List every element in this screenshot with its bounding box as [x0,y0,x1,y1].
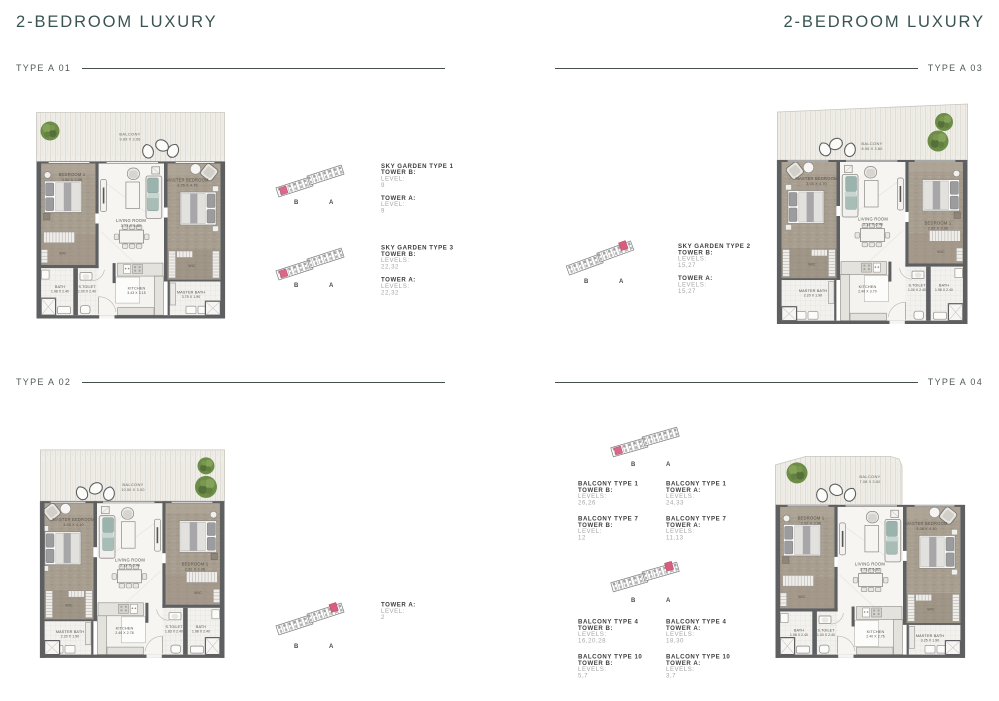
svg-text:MASTER BEDROOM: MASTER BEDROOM [905,521,948,526]
svg-text:BALCONY: BALCONY [122,482,143,487]
svg-text:S.TOILET: S.TOILET [78,285,96,289]
svg-text:22,32: 22,32 [381,289,399,296]
svg-text:S.TOILET: S.TOILET [817,629,835,633]
svg-text:10.50 X 3.00: 10.50 X 3.00 [121,488,144,492]
svg-text:9.89 X 3.06: 9.89 X 3.06 [119,138,140,142]
svg-text:WIC: WIC [798,595,806,599]
svg-text:BALCONY: BALCONY [861,141,882,146]
svg-text:MASTER BATH: MASTER BATH [916,634,944,638]
svg-text:B: B [631,462,636,468]
svg-text:3.75 X 1.90: 3.75 X 1.90 [182,295,200,299]
svg-text:BATH: BATH [939,284,949,288]
svg-text:11,13: 11,13 [666,535,684,542]
svg-text:WIC: WIC [188,264,196,268]
svg-text:MASTER BATH: MASTER BATH [799,289,827,293]
svg-text:3.25 X 1.90: 3.25 X 1.90 [921,638,939,642]
svg-text:B: B [294,200,299,206]
svg-text:MASTER BATH: MASTER BATH [56,630,84,634]
svg-text:24,33: 24,33 [666,500,684,507]
svg-text:22,32: 22,32 [381,264,399,271]
svg-text:2.40 X 2.78: 2.40 X 2.78 [115,631,133,635]
svg-text:16,20,28: 16,20,28 [578,638,606,645]
svg-text:LIVING ROOM: LIVING ROOM [116,218,146,223]
svg-text:2.92 X 3.06: 2.92 X 3.06 [801,521,822,525]
svg-text:2.20 X 1.90: 2.20 X 1.90 [61,635,79,639]
svg-text:BALCONY: BALCONY [119,132,140,137]
svg-text:TYPE A 03: TYPE A 03 [928,63,983,73]
svg-text:9: 9 [381,208,385,215]
svg-text:MASTER BEDROOM: MASTER BEDROOM [795,176,838,181]
svg-text:WIC: WIC [808,263,816,267]
svg-text:2-BEDROOM LUXURY: 2-BEDROOM LUXURY [783,13,985,31]
svg-text:KITCHEN: KITCHEN [859,285,877,289]
svg-text:1.98 X 2.40: 1.98 X 2.40 [935,288,953,292]
svg-text:3.05 X 4.70: 3.05 X 4.70 [806,182,827,186]
svg-text:1.98 X 2.40: 1.98 X 2.40 [192,629,210,633]
svg-text:BATH: BATH [794,629,804,633]
svg-text:MASTER BATH: MASTER BATH [177,291,205,295]
svg-text:1.00 X 2.40: 1.00 X 2.40 [817,633,835,637]
svg-text:B: B [584,279,589,285]
svg-text:1.00 X 2.40: 1.00 X 2.40 [78,290,96,294]
svg-text:KITCHEN: KITCHEN [116,626,134,630]
svg-text:BEDROOM 1: BEDROOM 1 [182,562,209,567]
svg-text:BATH: BATH [196,625,206,629]
svg-text:3.73 X 6.80: 3.73 X 6.80 [121,224,142,228]
svg-text:3,7: 3,7 [666,673,676,680]
svg-text:S.TOILET: S.TOILET [165,625,183,629]
svg-text:3.05 X 4.75: 3.05 X 4.75 [177,184,198,188]
svg-text:18,30: 18,30 [666,638,684,645]
svg-text:LIVING ROOM: LIVING ROOM [855,561,885,566]
svg-text:BEDROOM 1: BEDROOM 1 [798,515,825,520]
svg-text:3.73 X 6.82: 3.73 X 6.82 [860,567,881,571]
svg-text:2.92 X 3.06: 2.92 X 3.06 [185,568,206,572]
svg-text:MASTER BEDROOM: MASTER BEDROOM [52,517,95,522]
svg-text:1.00 X 2.40: 1.00 X 2.40 [908,288,926,292]
svg-text:KITCHEN: KITCHEN [867,630,885,634]
svg-text:A: A [329,283,334,289]
svg-text:2.92 X 3.06: 2.92 X 3.06 [928,227,949,231]
svg-text:A: A [329,200,334,206]
svg-text:3.19 X 6.40: 3.19 X 6.40 [863,223,884,227]
svg-text:TYPE A 02: TYPE A 02 [16,377,71,387]
svg-text:BEDROOM 1: BEDROOM 1 [59,172,86,177]
svg-text:1.83 X 2.40: 1.83 X 2.40 [165,629,183,633]
svg-text:2.20 X 1.90: 2.20 X 1.90 [804,294,822,298]
svg-text:5,7: 5,7 [578,673,588,680]
svg-text:8.56 X 3.80: 8.56 X 3.80 [861,147,882,151]
svg-text:1.98 X 2.40: 1.98 X 2.40 [51,290,69,294]
svg-text:TYPE A 01: TYPE A 01 [16,63,71,73]
svg-text:1.98 X 2.40: 1.98 X 2.40 [790,633,808,637]
svg-text:2-BEDROOM LUXURY: 2-BEDROOM LUXURY [16,13,218,31]
svg-text:TYPE A 04: TYPE A 04 [928,377,983,387]
svg-text:LIVING ROOM: LIVING ROOM [115,558,145,563]
svg-text:9: 9 [381,182,385,189]
svg-text:BEDROOM 1: BEDROOM 1 [925,221,952,226]
svg-text:15,27: 15,27 [678,262,696,269]
svg-text:26,26: 26,26 [578,500,596,507]
svg-text:KITCHEN: KITCHEN [128,287,146,291]
svg-text:BALCONY: BALCONY [859,474,880,479]
svg-text:WIC: WIC [194,591,202,595]
svg-text:WIC: WIC [59,252,67,256]
svg-text:3.19 X 6.40: 3.19 X 6.40 [120,564,141,568]
svg-text:3.43 X 3.15: 3.43 X 3.15 [127,291,145,295]
svg-text:LIVING ROOM: LIVING ROOM [858,217,888,222]
svg-text:B: B [294,283,299,289]
svg-text:2.40 X 3.70: 2.40 X 3.70 [858,290,876,294]
svg-text:3.05 X 4.10: 3.05 X 4.10 [63,523,84,527]
svg-text:BATH: BATH [55,285,65,289]
svg-text:A: A [619,279,624,285]
svg-text:S.TOILET: S.TOILET [908,284,926,288]
svg-text:A: A [329,644,334,650]
svg-text:2: 2 [381,614,385,621]
svg-text:WIC: WIC [65,604,73,608]
svg-text:A: A [666,598,671,604]
svg-text:7.08 X 3.60: 7.08 X 3.60 [859,480,880,484]
svg-text:WIC: WIC [937,250,945,254]
svg-text:MASTER BEDROOM: MASTER BEDROOM [166,178,209,183]
svg-text:B: B [294,644,299,650]
svg-text:3.08 X 4.10: 3.08 X 4.10 [916,527,937,531]
svg-text:WIC: WIC [927,607,935,611]
svg-text:3.50 X 3.05: 3.50 X 3.05 [62,178,83,182]
svg-text:2.40 X 2.76: 2.40 X 2.76 [866,635,884,639]
svg-text:B: B [631,598,636,604]
svg-text:A: A [666,462,671,468]
svg-text:15,27: 15,27 [678,288,696,295]
svg-text:12: 12 [578,535,586,542]
